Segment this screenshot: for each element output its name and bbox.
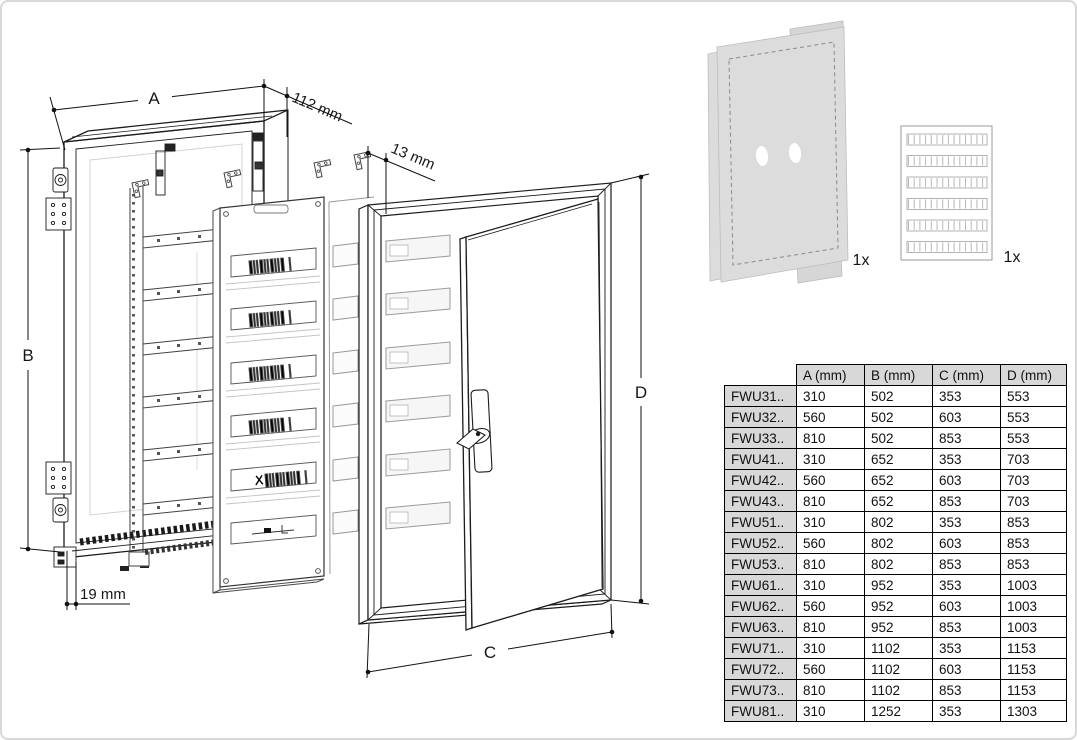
dim-d-cell: 853	[1001, 533, 1067, 554]
dim-b-cell: 1252	[865, 701, 933, 722]
table-row: FWU42..560652603703	[725, 470, 1067, 491]
model-cell: FWU62..	[725, 596, 797, 617]
model-cell: FWU71..	[725, 638, 797, 659]
dim-d-cell: 1003	[1001, 596, 1067, 617]
dim-c-cell: 353	[933, 449, 1001, 470]
model-cell: FWU33..	[725, 428, 797, 449]
dim-a-cell: 560	[797, 596, 865, 617]
dim-b-cell: 802	[865, 533, 933, 554]
table-row: FWU52..560802603853	[725, 533, 1067, 554]
cover-panel-rear-drawing	[329, 197, 450, 574]
dim-b-cell: 802	[865, 512, 933, 533]
dim-d-cell: 1153	[1001, 659, 1067, 680]
dim-a-cell: 810	[797, 617, 865, 638]
dim-c-cell: 603	[933, 659, 1001, 680]
dim-c-cell: 603	[933, 596, 1001, 617]
dim-c-cell: 853	[933, 680, 1001, 701]
table-row: FWU51..310802353853	[725, 512, 1067, 533]
dim-c-cell: 853	[933, 491, 1001, 512]
dim-a-cell: 560	[797, 407, 865, 428]
dim-a-cell: 560	[797, 533, 865, 554]
dim-d-cell: 553	[1001, 407, 1067, 428]
dim-d-cell: 1153	[1001, 680, 1067, 701]
dim-c-cell: 603	[933, 470, 1001, 491]
dim-c-cell: 353	[933, 638, 1001, 659]
col-header-d: D (mm)	[1001, 365, 1067, 386]
dim-d-cell: 1303	[1001, 701, 1067, 722]
dim-b-cell: 502	[865, 407, 933, 428]
dim-b-cell: 652	[865, 449, 933, 470]
dim-a-cell: 310	[797, 449, 865, 470]
dim-bottom-offset-label: 19 mm	[80, 586, 126, 603]
label-sheet-drawing	[901, 126, 992, 260]
model-cell: FWU32..	[725, 407, 797, 428]
dim-c-cell: 353	[933, 386, 1001, 407]
table-row: FWU31..310502353553	[725, 386, 1067, 407]
dim-a-cell: 310	[797, 701, 865, 722]
model-cell: FWU63..	[725, 617, 797, 638]
dim-c-cell: 603	[933, 407, 1001, 428]
dim-b-cell: 652	[865, 470, 933, 491]
table-row: FWU73..81011028531153	[725, 680, 1067, 701]
dimension-table: A (mm) B (mm) C (mm) D (mm) FWU31..31050…	[724, 364, 1067, 722]
dim-b-cell: 1102	[865, 638, 933, 659]
model-cell: FWU31..	[725, 386, 797, 407]
table-row: FWU71..31011023531153	[725, 638, 1067, 659]
dim-b-cell: 502	[865, 428, 933, 449]
dim-b-cell: 1102	[865, 680, 933, 701]
dim-b-cell: 1102	[865, 659, 933, 680]
dim-a-cell: 310	[797, 638, 865, 659]
table-corner-cell	[725, 365, 797, 386]
dim-c-cell: 853	[933, 428, 1001, 449]
dim-b-cell: 802	[865, 554, 933, 575]
dim-a-label: A	[148, 89, 160, 108]
label-sheet-qty-label: 1x	[1004, 249, 1021, 266]
dim-a-cell: 810	[797, 554, 865, 575]
dim-a-cell: 810	[797, 680, 865, 701]
dim-c-cell: 853	[933, 617, 1001, 638]
model-cell: FWU41..	[725, 449, 797, 470]
dim-a-cell: 560	[797, 659, 865, 680]
table-row: FWU63..8109528531003	[725, 617, 1067, 638]
datasheet-page: A B C D 112 mm 13 mm 19 mm 1x	[0, 0, 1077, 740]
dim-a-cell: 560	[797, 470, 865, 491]
dim-d-cell: 553	[1001, 386, 1067, 407]
dim-c-cell: 353	[933, 701, 1001, 722]
dim-b-cell: 652	[865, 491, 933, 512]
dim-d-cell: 703	[1001, 491, 1067, 512]
dim-d-cell: 853	[1001, 554, 1067, 575]
table-row: FWU61..3109523531003	[725, 575, 1067, 596]
model-cell: FWU52..	[725, 533, 797, 554]
dim-a-cell: 310	[797, 575, 865, 596]
dim-c-cell: 853	[933, 554, 1001, 575]
model-cell: FWU51..	[725, 512, 797, 533]
cover-panel-front-drawing	[213, 197, 324, 593]
model-cell: FWU42..	[725, 470, 797, 491]
dim-c-cell: 353	[933, 575, 1001, 596]
col-header-c: C (mm)	[933, 365, 1001, 386]
dim-b-cell: 952	[865, 575, 933, 596]
dim-a-cell: 810	[797, 428, 865, 449]
dim-door-projection-label: 13 mm	[388, 140, 437, 174]
dim-c-cell: 603	[933, 533, 1001, 554]
col-header-a: A (mm)	[797, 365, 865, 386]
din-rail-chassis-drawing	[129, 186, 220, 566]
table-row: FWU53..810802853853	[725, 554, 1067, 575]
dim-d-cell: 1003	[1001, 617, 1067, 638]
model-cell: FWU73..	[725, 680, 797, 701]
dim-d-cell: 703	[1001, 449, 1067, 470]
dim-d-cell: 1003	[1001, 575, 1067, 596]
table-header-row: A (mm) B (mm) C (mm) D (mm)	[725, 365, 1067, 386]
col-header-b: B (mm)	[865, 365, 933, 386]
model-cell: FWU81..	[725, 701, 797, 722]
dim-d-cell: 553	[1001, 428, 1067, 449]
table-row: FWU32..560502603553	[725, 407, 1067, 428]
table-row: FWU43..810652853703	[725, 491, 1067, 512]
dim-d-label: D	[635, 383, 647, 402]
dim-b-label: B	[22, 346, 33, 365]
dim-b-cell: 952	[865, 596, 933, 617]
model-cell: FWU61..	[725, 575, 797, 596]
dim-depth-label: 112 mm	[289, 89, 345, 125]
model-cell: FWU43..	[725, 491, 797, 512]
spec-table-body: FWU31..310502353553FWU32..560502603553FW…	[725, 386, 1067, 722]
table-row: FWU41..310652353703	[725, 449, 1067, 470]
dim-a-cell: 310	[797, 512, 865, 533]
table-row: FWU62..5609526031003	[725, 596, 1067, 617]
dim-a-cell: 310	[797, 386, 865, 407]
dim-d-cell: 1153	[1001, 638, 1067, 659]
protective-foil-qty-label: 1x	[853, 252, 870, 269]
table-row: FWU81..31012523531303	[725, 701, 1067, 722]
dim-d-cell: 853	[1001, 512, 1067, 533]
dim-b-cell: 502	[865, 386, 933, 407]
model-cell: FWU72..	[725, 659, 797, 680]
dim-c-label: C	[484, 643, 496, 662]
table-row: FWU72..56011026031153	[725, 659, 1067, 680]
protective-foil-drawing	[708, 21, 848, 283]
dim-c-cell: 353	[933, 512, 1001, 533]
dim-d-cell: 703	[1001, 470, 1067, 491]
model-cell: FWU53..	[725, 554, 797, 575]
dim-b-cell: 952	[865, 617, 933, 638]
table-row: FWU33..810502853553	[725, 428, 1067, 449]
dim-a-cell: 810	[797, 491, 865, 512]
door-drawing	[457, 199, 603, 630]
